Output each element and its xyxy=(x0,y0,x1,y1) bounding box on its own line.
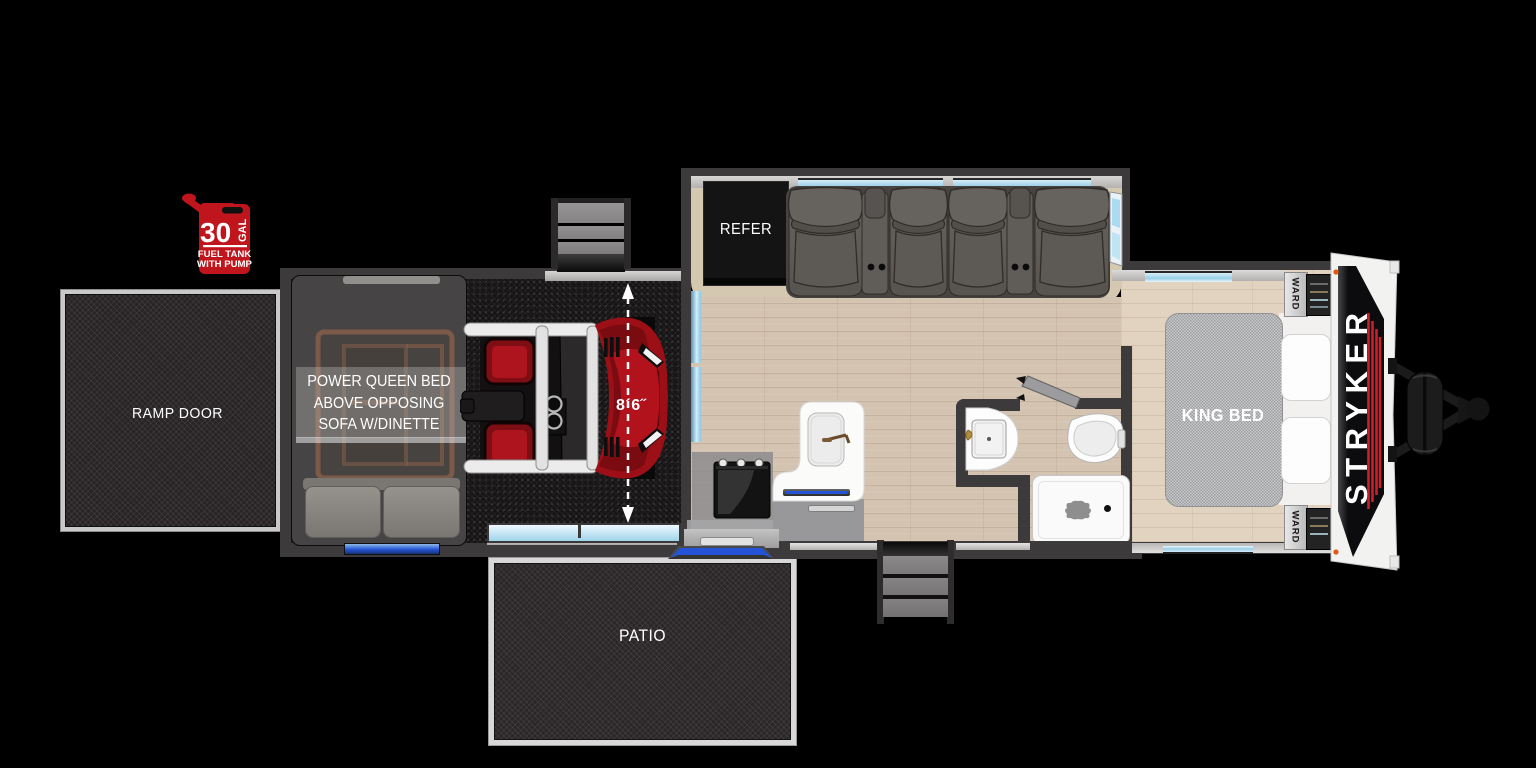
svg-text:GAL: GAL xyxy=(237,219,249,243)
svg-text:30: 30 xyxy=(200,217,231,248)
svg-text:WITH PUMP: WITH PUMP xyxy=(197,259,252,270)
svg-text:STRYKER: STRYKER xyxy=(1339,306,1374,505)
